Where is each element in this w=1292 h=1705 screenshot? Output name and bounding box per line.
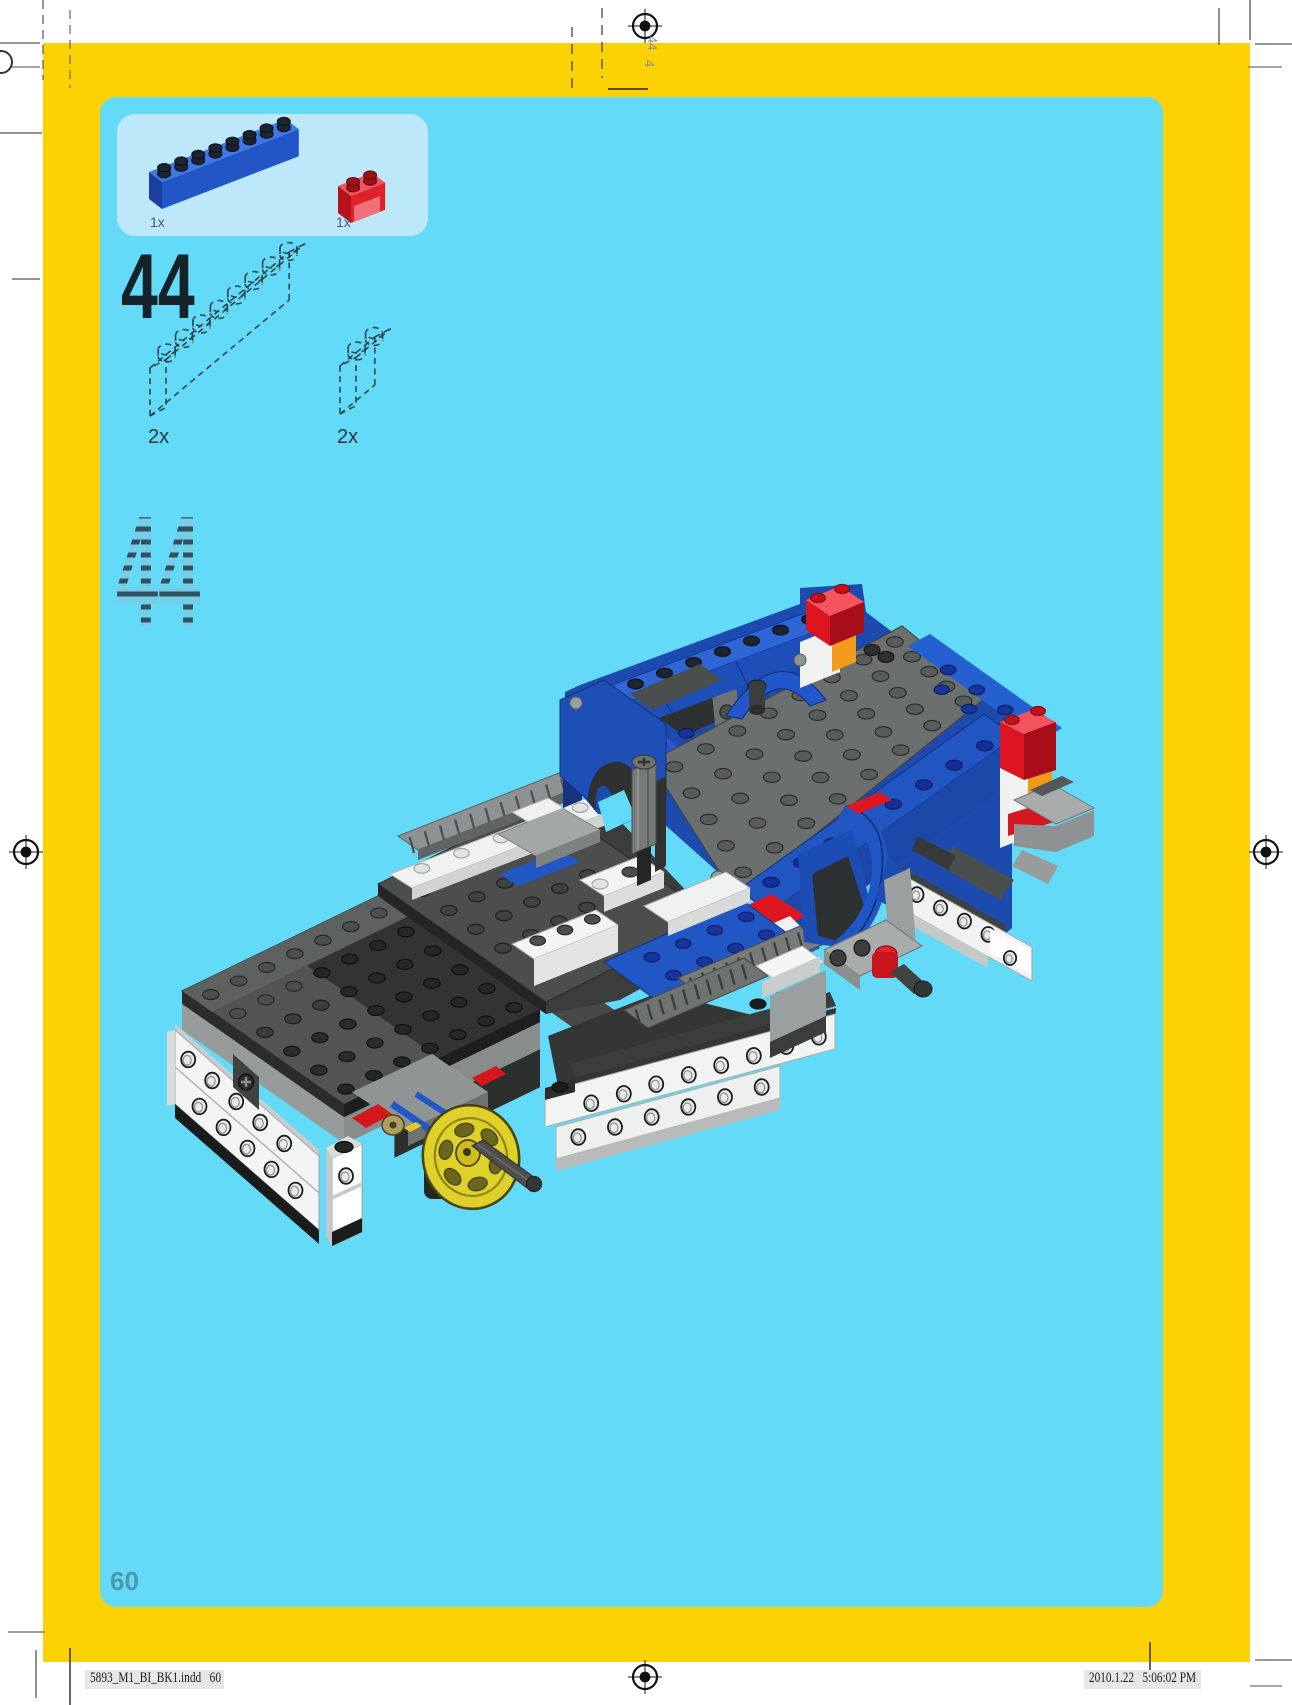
svg-text:2x: 2x: [148, 426, 169, 448]
svg-text:44: 44: [116, 484, 200, 660]
svg-text:4: 4: [642, 60, 657, 67]
svg-text:44: 44: [121, 234, 195, 337]
svg-text:44: 44: [645, 36, 660, 50]
svg-text:2010.1.22 5:06:02 PM: 2010.1.22 5:06:02 PM: [1089, 1670, 1196, 1686]
svg-text:1x: 1x: [336, 214, 351, 230]
svg-text:2x: 2x: [337, 426, 358, 448]
svg-text:1x: 1x: [150, 214, 165, 230]
svg-text:5893_M1_BI_BK1.indd 60: 5893_M1_BI_BK1.indd 60: [90, 1670, 221, 1686]
svg-text:60: 60: [110, 1566, 139, 1596]
